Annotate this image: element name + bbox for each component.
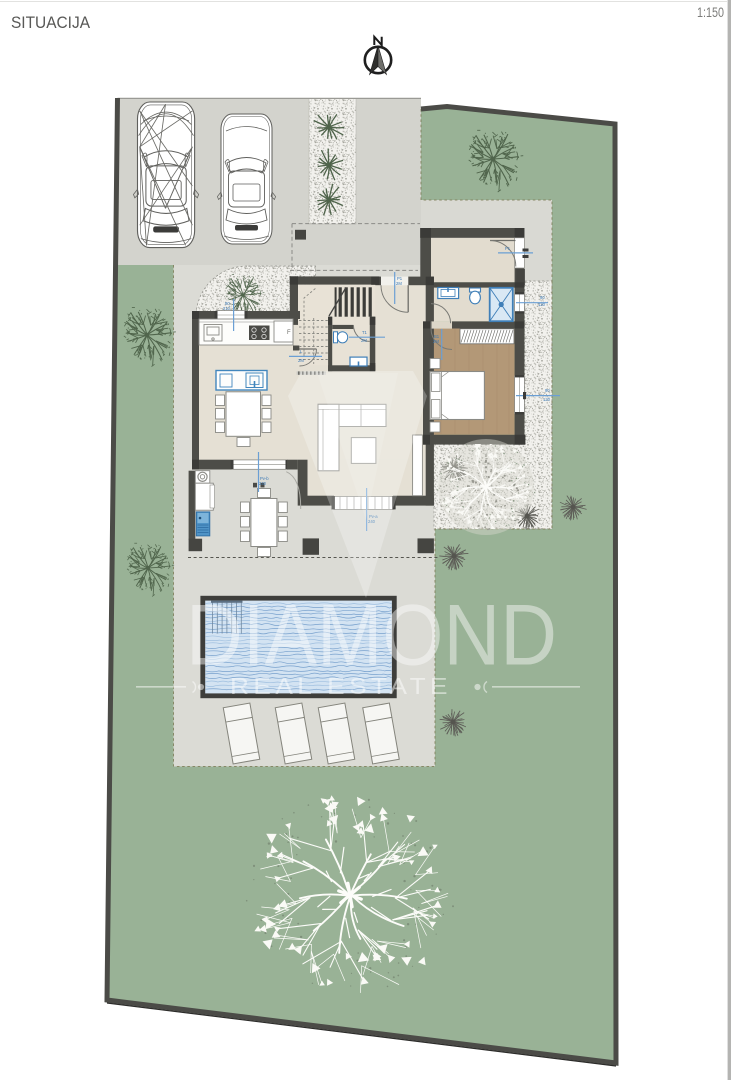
svg-text:SITUACIJA: SITUACIJA [11,13,91,32]
svg-text:T1: T1 [362,330,368,335]
svg-text:240: 240 [259,481,267,486]
svg-text:DIAMOND: DIAMOND [186,588,557,684]
svg-text:90: 90 [540,295,545,300]
svg-text:90: 90 [545,388,550,393]
svg-text:F: F [287,330,291,336]
svg-text:2M: 2M [298,358,304,363]
svg-text:2M: 2M [396,281,402,286]
svg-text:1:150: 1:150 [697,5,724,20]
svg-text:210: 210 [223,306,231,311]
svg-text:120: 120 [538,302,546,307]
svg-text:2M: 2M [361,338,367,343]
svg-text:REAL ESTATE: REAL ESTATE [230,673,452,699]
svg-text:120: 120 [543,397,551,402]
svg-text:P1: P1 [505,246,511,251]
svg-text:2M: 2M [433,339,439,344]
